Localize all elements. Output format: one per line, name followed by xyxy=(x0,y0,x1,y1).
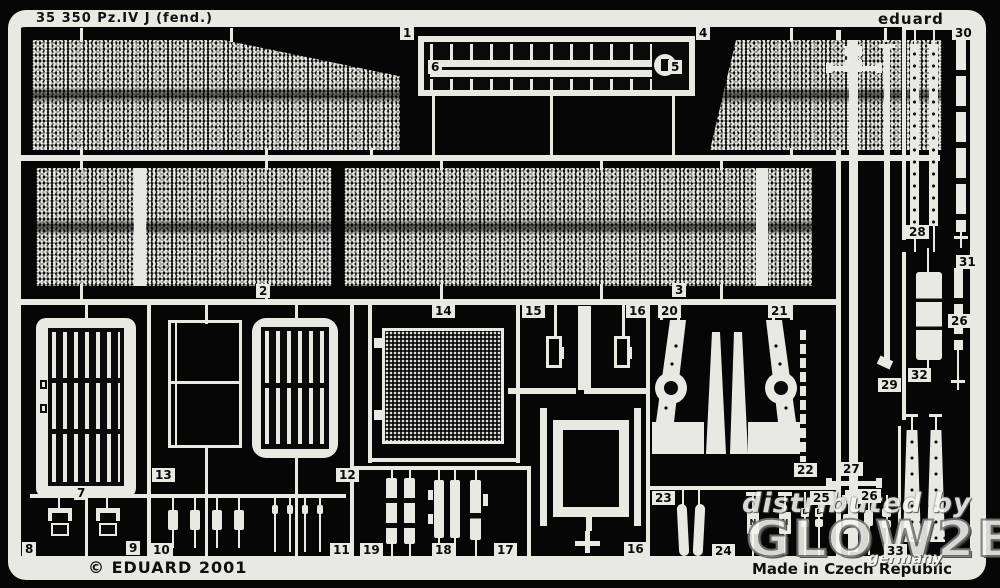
sprue-line xyxy=(884,28,887,42)
sprue-line xyxy=(720,284,723,301)
grille-hook xyxy=(40,404,47,413)
part-label-25: 25 xyxy=(810,491,833,505)
frame-side-strip xyxy=(634,408,641,526)
part-label-31: 31 xyxy=(956,255,979,269)
bracket-strip xyxy=(430,60,652,67)
grille-hook xyxy=(40,380,47,389)
part-label-7: 7 xyxy=(74,486,88,500)
grille-slats xyxy=(52,332,120,378)
part-label-26: 26 xyxy=(948,314,971,328)
part-label-17: 17 xyxy=(494,543,517,557)
sheet-title: 35 350 Pz.IV J (fend.) xyxy=(36,11,213,26)
sprue-rail xyxy=(584,388,646,394)
part-16-frame xyxy=(553,420,629,517)
part-13-panel xyxy=(168,320,242,448)
bracket-plate xyxy=(418,36,695,96)
part-label-29: 29 xyxy=(878,378,901,392)
part-label-5: 5 xyxy=(668,60,682,74)
part-15-clasp xyxy=(546,336,562,368)
sprue-line xyxy=(230,28,233,42)
part-label-6: 6 xyxy=(428,60,442,74)
grille-slats xyxy=(52,383,120,429)
part-label-14: 14 xyxy=(432,304,455,318)
grille-slats xyxy=(265,331,325,383)
sprue-line xyxy=(265,161,268,170)
bracket-teeth-row xyxy=(430,44,652,60)
sprue-rail xyxy=(368,458,520,462)
bracket-strip xyxy=(430,70,652,77)
bracket-teeth-row xyxy=(430,79,652,93)
part-label-23: 23 xyxy=(652,491,675,505)
part-label-1: 1 xyxy=(400,26,414,40)
part-label-24: 24 xyxy=(712,544,735,558)
panel-gap xyxy=(756,168,768,286)
sprue-line xyxy=(80,161,83,170)
sprue-line xyxy=(790,148,793,157)
part-label-32: 32 xyxy=(908,368,931,382)
part-label-12: 12 xyxy=(336,468,359,482)
fender-panel-right xyxy=(710,40,942,150)
part-label-13: 13 xyxy=(152,468,175,482)
panel-gap xyxy=(134,168,146,286)
sprue-line xyxy=(554,304,557,336)
sprue-line xyxy=(600,284,603,301)
sprue-line xyxy=(440,161,443,170)
sprue-line xyxy=(622,304,625,336)
sprue-line xyxy=(80,148,83,157)
sprue-line xyxy=(265,148,268,157)
sprue-rail xyxy=(350,305,354,557)
parts-20-21-mudflap-holders xyxy=(648,316,804,472)
sprue-line xyxy=(80,28,83,42)
mesh-tab xyxy=(374,410,384,420)
part-label-33: 33 xyxy=(884,544,907,558)
sprue-line xyxy=(720,161,723,170)
part-16-clasp xyxy=(614,336,630,368)
sprue-line xyxy=(295,453,298,557)
sprue-rail xyxy=(20,299,838,305)
clasp-tab xyxy=(627,347,632,359)
panel-edge-line xyxy=(175,323,177,445)
sprue-line xyxy=(370,148,373,157)
sprue-line xyxy=(550,94,553,157)
sprue-line xyxy=(85,495,88,557)
part-label-26b: 26 xyxy=(858,489,881,503)
sprue-rail xyxy=(508,388,576,394)
panel-seam xyxy=(32,88,400,101)
copyright-text: © EDUARD 2001 xyxy=(88,558,247,577)
sprue-line xyxy=(790,28,793,42)
cross-pin xyxy=(575,541,600,546)
mesh-tab xyxy=(374,338,384,348)
frame-side-strip xyxy=(540,408,547,526)
part-label-8: 8 xyxy=(22,542,36,556)
part-label-16: 16 xyxy=(626,304,649,318)
panel-seam xyxy=(36,220,332,234)
sprue-line xyxy=(205,446,208,557)
grille-slats xyxy=(265,388,325,444)
clasp-tab xyxy=(559,347,564,359)
part-3-fender-panel xyxy=(344,168,812,286)
sprue-rail xyxy=(352,466,528,470)
grille-slats xyxy=(52,434,120,482)
sprue-line xyxy=(80,284,83,301)
frame-stem xyxy=(586,515,592,531)
part-7-grille xyxy=(36,318,136,498)
center-strip xyxy=(578,306,591,390)
sprue-rail xyxy=(20,155,940,161)
part-label-30: 30 xyxy=(952,26,975,40)
panel-divider xyxy=(171,381,239,384)
part-label-16b: 16 xyxy=(624,542,647,556)
sprue-rail xyxy=(147,305,151,557)
sprue-line xyxy=(600,161,603,170)
part-label-9: 9 xyxy=(126,541,140,555)
sprue-rail xyxy=(150,494,346,498)
sprue-rail xyxy=(368,305,372,463)
part-label-4: 4 xyxy=(696,26,710,40)
part-label-3: 3 xyxy=(672,283,686,297)
sprue-line xyxy=(440,284,443,301)
part-label-11: 11 xyxy=(330,543,353,557)
part-label-10: 10 xyxy=(150,543,173,557)
part-label-28: 28 xyxy=(906,225,929,239)
sprue-rail xyxy=(516,305,520,463)
part-label-15: 15 xyxy=(522,304,545,318)
photoetch-fret-sheet: 35 350 Pz.IV J (fend.) eduard © EDUARD 2… xyxy=(0,0,1000,588)
part-14-mesh-screen xyxy=(382,328,504,444)
sprue-line xyxy=(432,94,435,157)
part-12-grille xyxy=(252,318,338,458)
sprue-line xyxy=(672,94,675,157)
part-label-27: 27 xyxy=(840,462,863,476)
panel-seam xyxy=(710,88,942,101)
part-label-18: 18 xyxy=(432,543,455,557)
part-2-fender-panel xyxy=(36,168,332,286)
panel-seam xyxy=(344,220,812,234)
part-label-2: 2 xyxy=(256,284,270,298)
sprue-rail xyxy=(527,466,531,557)
part-label-19: 19 xyxy=(360,543,383,557)
